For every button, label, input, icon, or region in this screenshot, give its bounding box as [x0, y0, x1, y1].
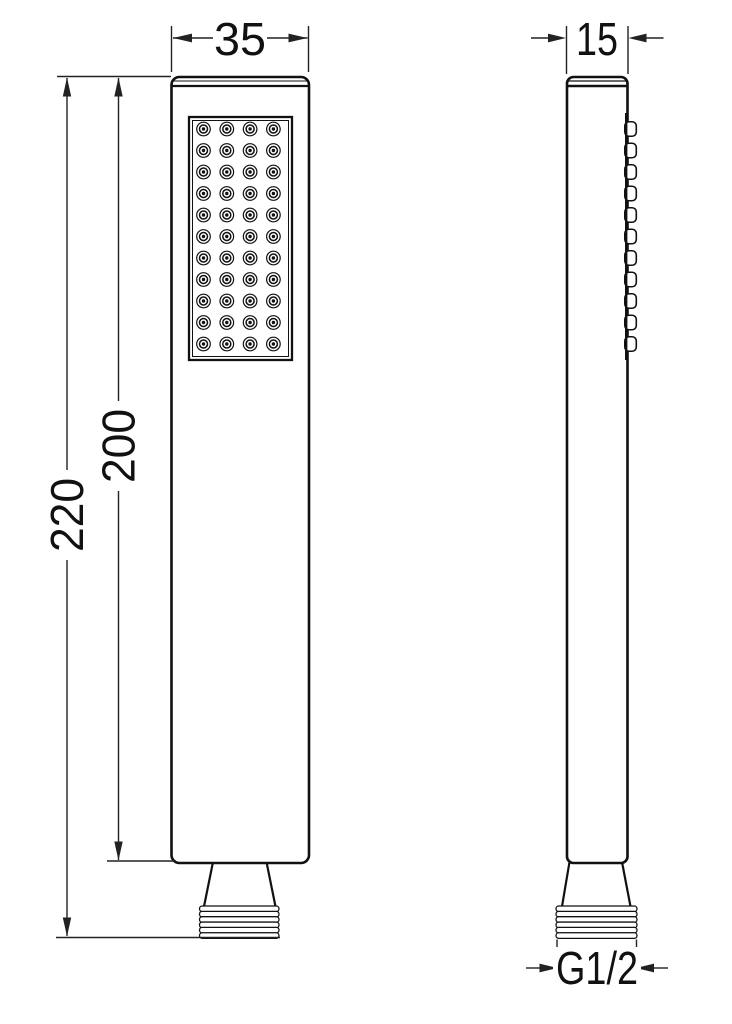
nozzle-center-dot — [272, 170, 275, 173]
nozzle-center-dot — [248, 192, 251, 195]
nozzle-center-dot — [225, 170, 228, 173]
dimension-thread-size: G1/2 — [526, 940, 668, 995]
dimension-side-depth: 15 — [531, 13, 664, 74]
nozzle-center-dot — [272, 278, 275, 281]
arrowhead-left-icon — [548, 34, 566, 43]
arrowhead-left-icon — [173, 34, 192, 43]
technical-drawing: 35 15 220 200 G1/2 — [0, 0, 732, 1024]
arrowhead-right-icon — [629, 34, 647, 43]
nozzle-center-dot — [202, 321, 205, 324]
front-view — [172, 77, 310, 938]
nozzle-center-dot — [225, 213, 228, 216]
nozzle-center-dot — [272, 299, 275, 302]
front-cone-left-edge — [204, 862, 213, 907]
side-body-outline — [567, 77, 628, 863]
side-cone — [562, 862, 631, 907]
nozzle-center-dot — [272, 127, 275, 130]
nozzle-center-dot — [202, 192, 205, 195]
nozzle-center-dot — [272, 342, 275, 345]
nozzle-center-dot — [272, 213, 275, 216]
dimension-front-width: 35 — [172, 13, 309, 72]
arrowhead-up-icon — [114, 78, 122, 97]
nozzle-center-dot — [248, 321, 251, 324]
nozzle-center-dot — [225, 149, 228, 152]
nozzle-center-dot — [248, 127, 251, 130]
nozzle-center-dot — [248, 299, 251, 302]
nozzle-center-dot — [202, 278, 205, 281]
nozzle-center-dot — [225, 342, 228, 345]
side-cone-left-edge — [562, 862, 570, 907]
front-cone — [204, 862, 276, 907]
nozzle-center-dot — [225, 321, 228, 324]
nozzle-center-dot — [202, 235, 205, 238]
dim-label-body-height: 200 — [93, 409, 145, 483]
drawing-canvas: 35 15 220 200 G1/2 — [0, 0, 732, 1024]
nozzle-center-dot — [248, 170, 251, 173]
nozzle-center-dot — [225, 192, 228, 195]
nozzle-center-dot — [202, 256, 205, 259]
nozzle-center-dot — [225, 278, 228, 281]
nozzle-center-dot — [248, 149, 251, 152]
side-thread-section — [556, 906, 637, 938]
nozzle-center-dot — [202, 299, 205, 302]
nozzle-center-dot — [202, 213, 205, 216]
dim-label-total-height: 220 — [41, 478, 93, 552]
nozzle-center-dot — [272, 235, 275, 238]
nozzle-center-dot — [272, 149, 275, 152]
nozzle-center-dot — [272, 321, 275, 324]
nozzle-center-dot — [272, 256, 275, 259]
nozzle-center-dot — [248, 235, 251, 238]
nozzle-center-dot — [248, 256, 251, 259]
nozzle-center-dot — [202, 170, 205, 173]
side-view — [556, 77, 637, 938]
nozzle-center-dot — [225, 299, 228, 302]
nozzle-center-dot — [248, 342, 251, 345]
nozzle-center-dot — [225, 127, 228, 130]
dim-label-front-width: 35 — [214, 13, 266, 65]
front-thread-section — [200, 906, 280, 938]
thread-ridge — [556, 933, 637, 939]
nozzle-center-dot — [248, 213, 251, 216]
side-cone-right-edge — [622, 862, 631, 907]
dim-label-thread-size: G1/2 — [556, 942, 638, 994]
arrowhead-down-icon — [63, 918, 71, 937]
nozzle-center-dot — [225, 235, 228, 238]
nozzle-center-dot — [272, 192, 275, 195]
front-cone-right-edge — [267, 862, 276, 907]
arrowhead-up-icon — [63, 78, 71, 97]
nozzle-center-dot — [202, 342, 205, 345]
nozzle-center-dot — [202, 149, 205, 152]
nozzle-center-dot — [225, 256, 228, 259]
nozzle-center-dot — [248, 278, 251, 281]
arrowhead-down-icon — [114, 842, 122, 861]
arrowhead-right-icon — [289, 34, 308, 43]
dim-label-side-depth: 15 — [576, 13, 618, 65]
dimension-body-height: 200 — [93, 78, 177, 862]
nozzle-center-dot — [202, 127, 205, 130]
